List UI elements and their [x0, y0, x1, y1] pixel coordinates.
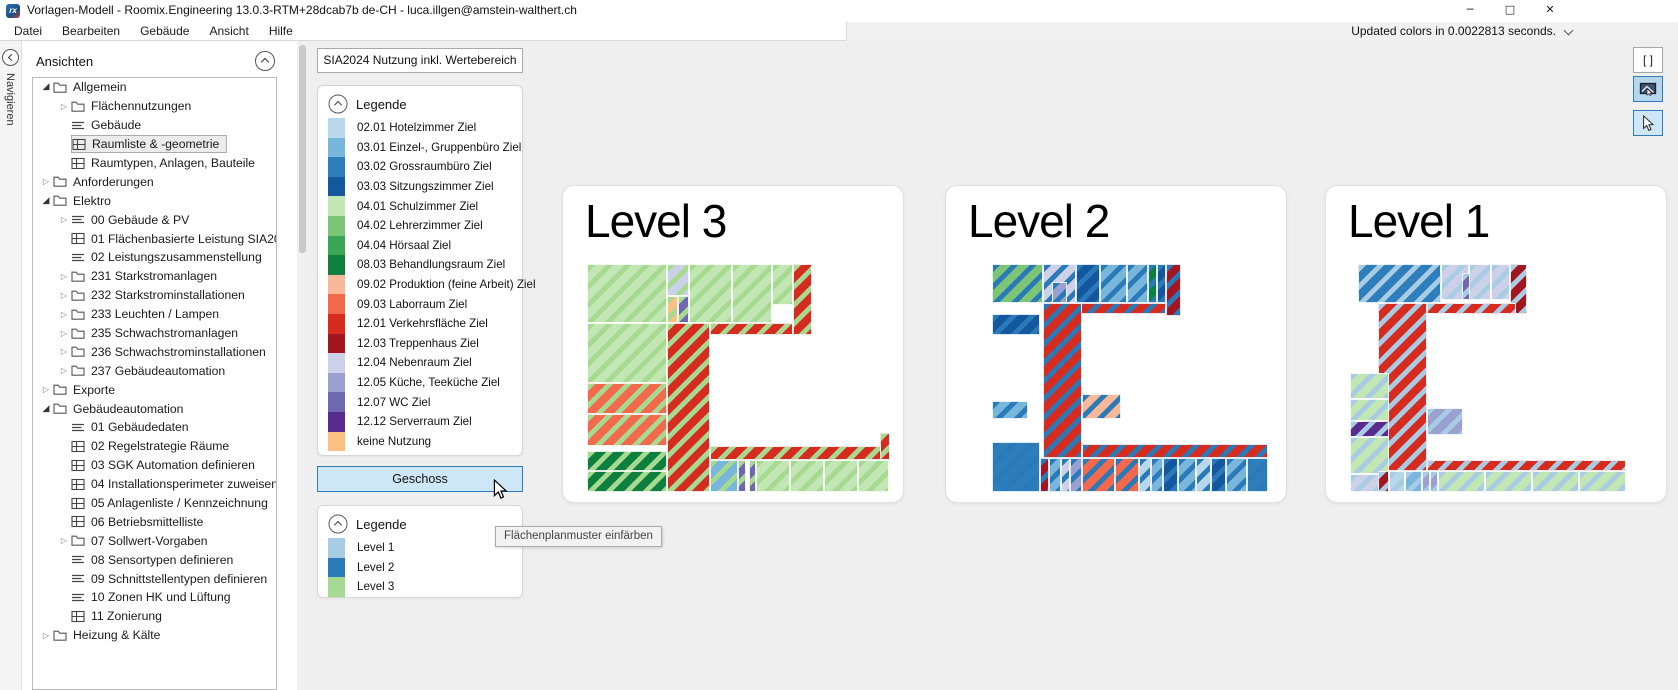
folder-icon [71, 308, 85, 321]
legend-swatch [328, 538, 345, 558]
minimize-button[interactable]: ─ [1450, 0, 1490, 22]
legend-swatch [328, 558, 345, 578]
tree-item[interactable]: 08 Sensortypen definieren [33, 550, 276, 569]
legend-label: 03.03 Sitzungszimmer Ziel [357, 180, 494, 193]
room[interactable] [992, 314, 1040, 335]
tree-item[interactable]: ▷237 Gebäudeautomation [33, 361, 276, 380]
legend-item: Level 2 [328, 558, 522, 578]
folder-icon [71, 534, 85, 547]
tree-item-label: Flächennutzungen [87, 98, 195, 114]
tree-item[interactable]: Raumtypen, Anlagen, Bauteile [33, 154, 276, 173]
title-bar: rx Vorlagen-Modell - Roomix.Engineering … [0, 0, 1678, 22]
tree-item-label: 06 Betriebsmittelliste [87, 514, 207, 530]
floor-plan-title: Level 1 [1348, 194, 1489, 248]
room[interactable] [1139, 458, 1151, 492]
room[interactable] [1115, 458, 1139, 492]
tree-item[interactable]: 02 Leistungszusammenstellung [33, 248, 276, 267]
expander-icon[interactable]: ▷ [57, 536, 71, 545]
room[interactable] [587, 471, 667, 492]
menu-ansicht[interactable]: Ansicht [199, 22, 258, 41]
floor-plan-title: Level 2 [968, 194, 1109, 248]
tree-item-label: Allgemein [69, 79, 131, 95]
folder-icon [71, 364, 85, 377]
folder-icon [71, 345, 85, 358]
legend-swatch [328, 294, 345, 314]
room[interactable] [1350, 373, 1389, 398]
legend-swatch [328, 577, 345, 597]
legend-swatch [328, 255, 345, 275]
room[interactable] [587, 383, 667, 415]
select-tool-button[interactable] [1633, 110, 1663, 136]
tree-item[interactable]: Gebäude [33, 116, 276, 135]
legend-item: 04.04 Hörsaal Ziel [328, 236, 522, 256]
room[interactable] [790, 460, 824, 492]
expander-icon[interactable]: ▷ [57, 291, 71, 300]
pattern-tool-button[interactable] [1633, 76, 1663, 102]
legend-item: 12.03 Treppenhaus Ziel [328, 334, 522, 354]
chevron-up-icon [333, 521, 341, 529]
scrollbar-thumb[interactable] [299, 45, 306, 253]
legend-label: Level 2 [357, 561, 394, 574]
room[interactable] [587, 451, 667, 472]
expander-icon[interactable]: ◢ [39, 82, 53, 92]
legend-item: 09.02 Produktion (feine Arbeit) Ziel [328, 275, 522, 295]
legend-title: Legende [356, 517, 407, 532]
chevron-down-icon[interactable] [1564, 26, 1574, 36]
tree-item[interactable]: ◢Gebäudeautomation [33, 399, 276, 418]
list-icon [71, 572, 85, 585]
menu-items: DateiBearbeitenGebäudeAnsichtHilfe [4, 22, 303, 41]
tree-item-label: 236 Schwachstrominstallationen [87, 344, 270, 360]
room[interactable] [1389, 471, 1406, 492]
tree-item[interactable]: 06 Betriebsmittelliste [33, 512, 276, 531]
tree-item-label: Raumliste & -geometrie [88, 136, 223, 152]
room[interactable] [858, 460, 889, 492]
legend-label: keine Nutzung [357, 435, 431, 448]
room[interactable] [756, 460, 790, 492]
room[interactable] [1430, 471, 1438, 492]
chevron-left-icon [8, 54, 15, 61]
floor-plan [1350, 264, 1626, 492]
room[interactable] [1076, 264, 1100, 303]
tree-item[interactable]: ▷Exporte [33, 380, 276, 399]
room[interactable] [732, 264, 772, 323]
usage-legend-items: 02.01 Hotelzimmer Ziel03.01 Einzel-, Gru… [318, 118, 522, 451]
room[interactable] [1082, 444, 1268, 458]
room[interactable] [1166, 264, 1181, 316]
room[interactable] [1163, 458, 1178, 492]
usage-legend-card: Legende 02.01 Hotelzimmer Ziel03.01 Einz… [317, 85, 523, 456]
tree-item-label: 237 Gebäudeautomation [87, 363, 229, 379]
list-icon [71, 213, 85, 226]
tree-scrollbar[interactable] [297, 41, 307, 690]
room[interactable] [1358, 264, 1441, 303]
tree-item[interactable]: ▷Heizung & Kälte [33, 626, 276, 645]
legend-item: 12.01 Verkehrsfläche Ziel [328, 314, 522, 334]
room[interactable] [1061, 458, 1070, 492]
tooltip: Flächenplanmuster einfärben [495, 526, 662, 547]
legend-label: 02.01 Hotelzimmer Ziel [357, 121, 476, 134]
floor-plan-card: Level 1 [1325, 185, 1667, 503]
room[interactable] [1070, 458, 1082, 492]
room[interactable] [1247, 458, 1268, 492]
tree-item[interactable]: ▷Flächennutzungen [33, 97, 276, 116]
legend-swatch [328, 432, 345, 452]
room[interactable] [1469, 264, 1491, 300]
legend-label: 04.01 Schulzimmer Ziel [357, 200, 478, 213]
tree-item[interactable]: 01 Gebäudedaten [33, 418, 276, 437]
legend-label: 08.03 Behandlungsraum Ziel [357, 258, 505, 271]
cursor-icon [1642, 115, 1655, 132]
legend-swatch [328, 314, 345, 334]
tree-item[interactable]: 02 Regelstrategie Räume [33, 437, 276, 456]
room[interactable] [1043, 303, 1082, 458]
room[interactable] [710, 460, 738, 492]
image-cursor-icon [1639, 82, 1657, 96]
tree-item-label: 232 Starkstrominstallationen [87, 287, 249, 303]
legend-item: Level 3 [328, 577, 522, 597]
room[interactable] [1226, 458, 1247, 492]
tree-item-label: 04 Installationsperimeter zuweisen [87, 476, 277, 492]
mouse-cursor-icon [493, 479, 508, 505]
tree-item-label: 08 Sensortypen definieren [87, 552, 237, 568]
expander-icon[interactable]: ▷ [39, 385, 53, 394]
views-tree: ◢Allgemein▷FlächennutzungenGebäudeRaumli… [32, 77, 277, 690]
legend-item: keine Nutzung [328, 432, 522, 452]
room[interactable] [1157, 264, 1166, 303]
menu-bar: DateiBearbeitenGebäudeAnsichtHilfe Updat… [0, 22, 1678, 41]
legend-swatch [328, 412, 345, 432]
legend-label: 04.02 Lehrerzimmer Ziel [357, 219, 483, 232]
expander-icon[interactable]: ▷ [57, 329, 71, 338]
tree-item-label: 07 Sollwert-Vorgaben [87, 533, 212, 549]
tree-item[interactable]: ▷07 Sollwert-Vorgaben [33, 531, 276, 550]
expander-icon[interactable]: ▷ [57, 310, 71, 319]
legend-label: 12.01 Verkehrsfläche Ziel [357, 317, 488, 330]
folder-icon [53, 629, 67, 642]
room[interactable] [1462, 273, 1470, 300]
tree-item[interactable]: ▷232 Starkstrominstallationen [33, 286, 276, 305]
tree-item[interactable]: 11 Zonierung [33, 607, 276, 626]
tree-item-label: 05 Anlagenliste / Kennzeichnung [87, 495, 272, 511]
tree-item-label: 02 Leistungszusammenstellung [87, 249, 266, 265]
legend-swatch [328, 236, 345, 256]
tree-item-label: Elektro [69, 193, 115, 209]
folder-icon [71, 100, 85, 113]
app-icon: rx [6, 4, 20, 18]
table-icon [71, 497, 85, 510]
tree-item-label: Gebäude [87, 117, 145, 133]
list-icon [71, 591, 85, 604]
folder-icon [53, 81, 67, 94]
list-icon [71, 119, 85, 132]
room[interactable] [587, 323, 667, 382]
room[interactable] [1350, 421, 1389, 437]
legend-label: 03.01 Einzel-, Gruppenbüro Ziel [357, 141, 521, 154]
room[interactable] [1151, 458, 1163, 492]
table-icon [71, 610, 85, 623]
legend-swatch [328, 392, 345, 412]
room[interactable] [587, 264, 667, 323]
room[interactable] [1350, 437, 1389, 473]
tree-item[interactable]: ▷00 Gebäude & PV [33, 210, 276, 229]
floor-plan-card: Level 3 [562, 185, 904, 503]
room[interactable] [710, 446, 889, 460]
tree-item-label: 231 Starkstromanlagen [87, 268, 221, 284]
status-strip: Updated colors in 0.0022813 seconds. [846, 22, 1678, 41]
folder-icon [71, 270, 85, 283]
tree-item-label: Anforderungen [69, 174, 158, 190]
navigator-panel-title: Ansichten [36, 54, 93, 69]
navigator-panel: Ansichten ◢Allgemein▷FlächennutzungenGeb… [22, 41, 297, 690]
room[interactable] [1052, 282, 1067, 303]
tree-item[interactable]: 03 SGK Automation definieren [33, 456, 276, 475]
close-button[interactable]: ✕ [1530, 0, 1570, 22]
room[interactable] [1378, 471, 1389, 492]
legend-item: 03.01 Einzel-, Gruppenbüro Ziel [328, 138, 522, 158]
room[interactable] [1427, 303, 1515, 314]
collapse-views-button[interactable] [255, 51, 275, 71]
room[interactable] [667, 323, 710, 492]
chevron-up-icon [333, 101, 341, 109]
legend-item: 03.03 Sitzungszimmer Ziel [328, 177, 522, 197]
level-legend-header: Legende [318, 506, 522, 538]
status-text: Updated colors in 0.0022813 seconds. [1351, 24, 1556, 38]
tree-item-label: Exporte [69, 382, 119, 398]
legend-label: 03.02 Grossraumbüro Ziel [357, 160, 492, 173]
folder-icon [53, 402, 67, 415]
room[interactable] [1100, 264, 1127, 303]
expander-icon[interactable]: ▷ [57, 347, 71, 356]
floor-plan [968, 264, 1268, 492]
room[interactable] [1040, 458, 1049, 492]
legend-swatch [328, 157, 345, 177]
expander-icon[interactable]: ▷ [57, 366, 71, 375]
usage-legend-header: Legende [318, 86, 522, 118]
legend-swatch [328, 353, 345, 373]
tree-item[interactable]: 05 Anlagenliste / Kennzeichnung [33, 494, 276, 513]
expander-icon[interactable]: ▷ [57, 215, 71, 224]
folder-icon [71, 327, 85, 340]
expander-icon[interactable]: ▷ [57, 102, 71, 111]
collapse-navigator-button[interactable] [2, 49, 19, 66]
legend-swatch [328, 177, 345, 197]
room[interactable] [1405, 471, 1422, 492]
room[interactable] [1491, 264, 1510, 300]
level-legend-items: Level 1Level 2Level 3 [318, 538, 522, 597]
tree-item-label: Raumtypen, Anlagen, Bauteile [87, 155, 259, 171]
room[interactable] [1082, 394, 1121, 419]
legend-swatch [328, 118, 345, 138]
legend-label: 09.03 Laborraum Ziel [357, 298, 467, 311]
legend-item: 12.05 Küche, Teeküche Ziel [328, 373, 522, 393]
room[interactable] [1082, 458, 1115, 492]
legend-swatch [328, 275, 345, 295]
expander-icon[interactable]: ▷ [39, 631, 53, 640]
table-icon [71, 478, 85, 491]
legend-label: 04.04 Hörsaal Ziel [357, 239, 451, 252]
table-icon [71, 440, 85, 453]
legend-label: 12.07 WC Ziel [357, 396, 430, 409]
tree-item[interactable]: ▷233 Leuchten / Lampen [33, 305, 276, 324]
room[interactable] [678, 296, 689, 323]
tree-item-label: 11 Zonierung [87, 608, 166, 624]
chevron-up-icon [260, 58, 268, 66]
room[interactable] [667, 264, 689, 296]
tree-item[interactable]: ▷Anforderungen [33, 172, 276, 191]
folder-icon [71, 289, 85, 302]
table-icon [71, 515, 85, 528]
tree-item-label: 235 Schwachstromanlagen [87, 325, 242, 341]
folder-icon [53, 383, 67, 396]
list-icon [71, 553, 85, 566]
window-title: Vorlagen-Modell - Roomix.Engineering 13.… [27, 3, 577, 17]
tree-item[interactable]: 04 Installationsperimeter zuweisen [33, 475, 276, 494]
room[interactable] [1427, 408, 1463, 435]
navigator-vertical-label: Navigieren [4, 73, 16, 126]
window-controls: ─ □ ✕ [1450, 0, 1570, 22]
room[interactable] [880, 433, 891, 460]
legend-swatch [328, 334, 345, 354]
legend-item: 12.12 Serverraum Ziel [328, 412, 522, 432]
room[interactable] [667, 296, 678, 323]
tree-item[interactable]: ▷236 Schwachstrominstallationen [33, 342, 276, 361]
table-icon [72, 138, 86, 151]
tree-item-label: 03 SGK Automation definieren [87, 457, 259, 473]
brackets-tool-button[interactable]: [ ] [1633, 47, 1663, 73]
room[interactable] [749, 460, 757, 492]
legend-title: Legende [356, 97, 407, 112]
legend-label: 12.05 Küche, Teeküche Ziel [357, 376, 500, 389]
expander-icon[interactable]: ◢ [39, 404, 53, 414]
tree-item[interactable]: Raumliste & -geometrie [33, 135, 276, 154]
tree-item-label: 01 Flächenbasierte Leistung SIA2024 [87, 231, 277, 247]
legend-label: Level 1 [357, 541, 394, 554]
room[interactable] [1196, 458, 1211, 492]
room[interactable] [1427, 460, 1626, 471]
navigator-strip: Navigieren [0, 41, 22, 690]
folder-icon [53, 194, 67, 207]
legend-label: 12.04 Nebenraum Ziel [357, 356, 472, 369]
room[interactable] [689, 264, 732, 323]
expander-icon[interactable]: ▷ [39, 177, 53, 186]
legend-swatch [328, 373, 345, 393]
legend-item: 08.03 Behandlungsraum Ziel [328, 255, 522, 275]
floor-plan-title: Level 3 [585, 194, 726, 248]
list-icon [71, 421, 85, 434]
tree-item[interactable]: 09 Schnittstellentypen definieren [33, 569, 276, 588]
collapse-legend-button[interactable] [329, 95, 348, 114]
tree-item-label: 02 Regelstrategie Räume [87, 438, 233, 454]
room[interactable] [824, 460, 858, 492]
room[interactable] [1127, 264, 1148, 303]
room[interactable] [710, 323, 793, 334]
folder-icon [53, 175, 67, 188]
room[interactable] [1350, 399, 1389, 422]
legend-item: 12.04 Nebenraum Ziel [328, 353, 522, 373]
table-icon [71, 459, 85, 472]
expander-icon[interactable]: ◢ [39, 196, 53, 206]
collapse-legend-button[interactable] [329, 515, 348, 534]
tree-item[interactable]: ◢Elektro [33, 191, 276, 210]
legend-label: 12.12 Serverraum Ziel [357, 415, 472, 428]
room[interactable] [1438, 471, 1485, 492]
tree-item-label: 01 Gebäudedaten [87, 419, 193, 435]
room[interactable] [1178, 458, 1196, 492]
room[interactable] [1579, 471, 1626, 492]
room[interactable] [1076, 303, 1166, 314]
room[interactable] [1532, 471, 1579, 492]
menu-gebäude[interactable]: Gebäude [130, 22, 199, 41]
room[interactable] [738, 460, 746, 492]
floor-plan-card: Level 2 [945, 185, 1287, 503]
room[interactable] [992, 401, 1028, 419]
legend-item: 04.02 Lehrerzimmer Ziel [328, 216, 522, 236]
tree-item[interactable]: 01 Flächenbasierte Leistung SIA2024 [33, 229, 276, 248]
tree-item-label: 10 Zonen HK und Lüftung [87, 589, 235, 605]
tree-item[interactable]: 10 Zonen HK und Lüftung [33, 588, 276, 607]
tree-item-label: 233 Leuchten / Lampen [87, 306, 223, 322]
legend-item: 03.02 Grossraumbüro Ziel [328, 157, 522, 177]
menu-hilfe[interactable]: Hilfe [259, 22, 303, 41]
legend-item: 04.01 Schulzimmer Ziel [328, 196, 522, 216]
legend-item: 12.07 WC Ziel [328, 392, 522, 412]
table-icon [71, 157, 85, 170]
legend-item: 09.03 Laborraum Ziel [328, 294, 522, 314]
level-legend-card: Legende Level 1Level 2Level 3 [317, 505, 523, 598]
legend-item: 02.01 Hotelzimmer Ziel [328, 118, 522, 138]
legend-swatch [328, 196, 345, 216]
room[interactable] [992, 264, 1043, 303]
tree-item-label: 00 Gebäude & PV [87, 212, 193, 228]
legend-swatch [328, 138, 345, 158]
room[interactable] [1148, 264, 1157, 303]
floor-plan [587, 264, 895, 492]
list-icon [71, 251, 85, 264]
table-icon [71, 232, 85, 245]
menu-datei[interactable]: Datei [4, 22, 52, 41]
tree-item[interactable]: ▷235 Schwachstromanlagen [33, 324, 276, 343]
menu-bearbeiten[interactable]: Bearbeiten [52, 22, 130, 41]
room[interactable] [793, 264, 811, 335]
room[interactable] [772, 264, 794, 305]
legend-item: Level 1 [328, 538, 522, 558]
legend-label: 12.03 Treppenhaus Ziel [357, 337, 479, 350]
tree-item-label: Gebäudeautomation [69, 401, 187, 417]
tree-item[interactable]: ▷231 Starkstromanlagen [33, 267, 276, 286]
expander-icon[interactable]: ▷ [57, 272, 71, 281]
room[interactable] [1049, 458, 1061, 492]
legend-swatch [328, 216, 345, 236]
tree-item-label: 09 Schnittstellentypen definieren [87, 571, 271, 587]
room[interactable] [992, 442, 1040, 492]
legend-label: Level 3 [357, 580, 394, 593]
maximize-button[interactable]: □ [1490, 0, 1530, 22]
room[interactable] [1422, 471, 1430, 492]
legend-label: 09.02 Produktion (feine Arbeit) Ziel [357, 278, 536, 291]
tree-item[interactable]: ◢Allgemein [33, 78, 276, 97]
room[interactable] [587, 414, 667, 446]
tree-item-label: Heizung & Kälte [69, 627, 164, 643]
view-mode-button[interactable]: SIA2024 Nutzung inkl. Wertebereich [317, 48, 523, 73]
room[interactable] [1485, 471, 1532, 492]
room[interactable] [1211, 458, 1226, 492]
